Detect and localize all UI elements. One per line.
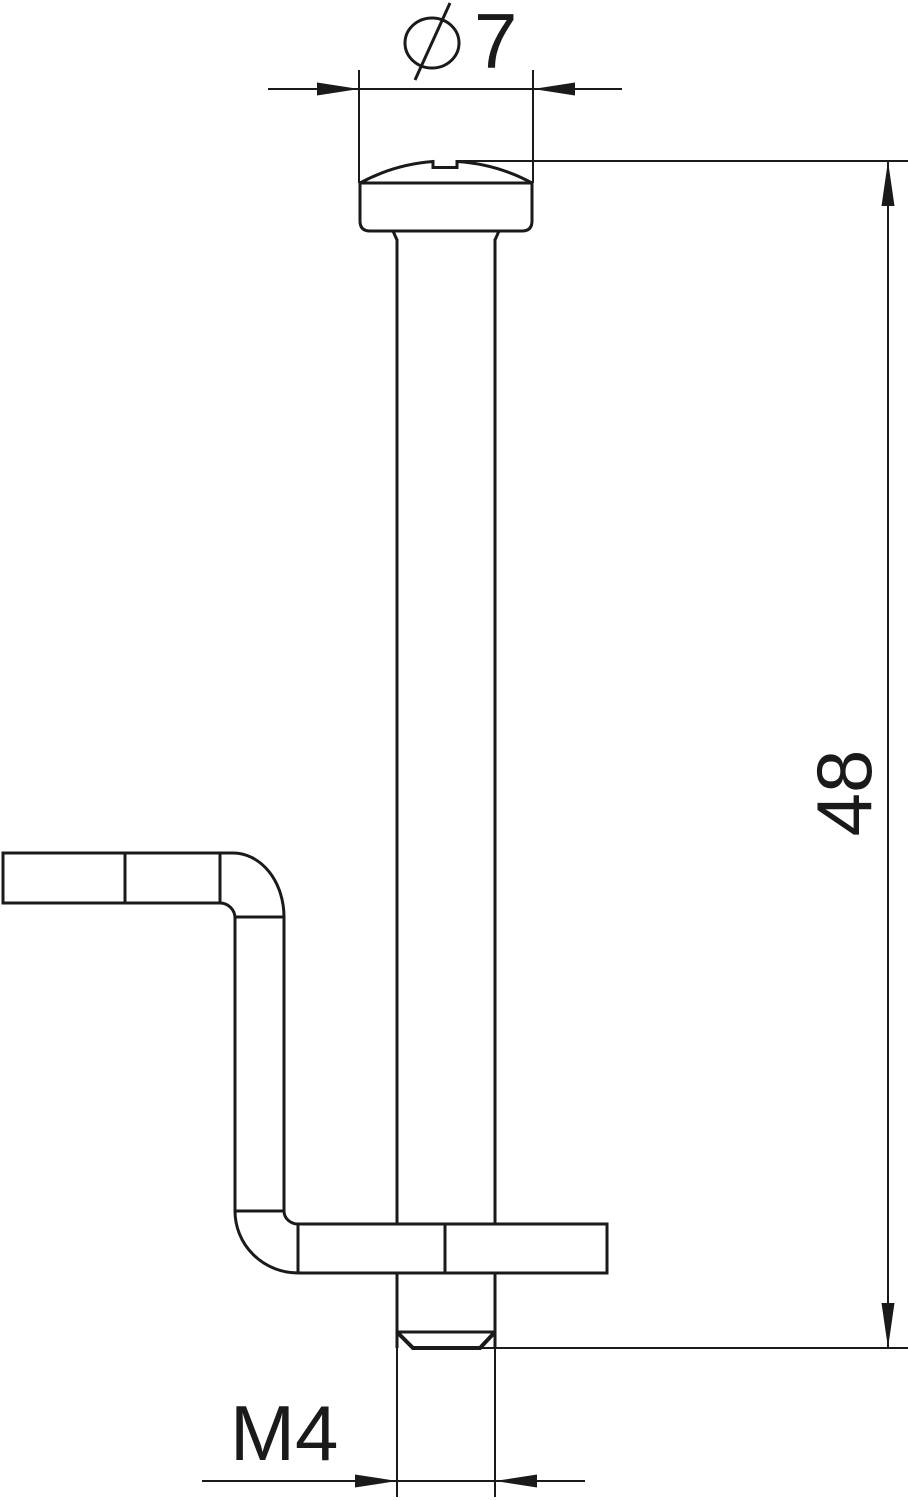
screw-shaft-upper xyxy=(397,239,495,1224)
arrowhead-left-icon xyxy=(533,83,575,96)
arrowhead-right-icon xyxy=(317,83,359,96)
dimension-head-diameter xyxy=(268,3,622,183)
arrowhead-left-icon xyxy=(495,1475,537,1488)
arrowhead-down-icon xyxy=(882,1303,895,1348)
screw-tip-chamfer xyxy=(397,1332,495,1348)
screw-shaft-lower xyxy=(397,1273,495,1348)
screw-head-dome xyxy=(360,162,532,184)
screw-head-body xyxy=(360,183,532,231)
extension-lines-thread xyxy=(397,1348,495,1497)
diameter-symbol-icon xyxy=(405,3,459,80)
drawing-linework xyxy=(0,0,908,1500)
arrowhead-right-icon xyxy=(355,1475,397,1488)
z-bracket-outline xyxy=(3,853,607,1273)
technical-drawing-canvas: 7 48 M4 xyxy=(0,0,908,1500)
dimension-value-thread-size: M4 xyxy=(230,1394,338,1472)
z-bracket xyxy=(3,853,607,1273)
dimension-value-overall-length: 48 xyxy=(805,733,883,853)
dimension-value-head-diameter: 7 xyxy=(474,2,517,80)
screw-outline xyxy=(360,162,532,1349)
arrowhead-up-icon xyxy=(882,161,895,206)
